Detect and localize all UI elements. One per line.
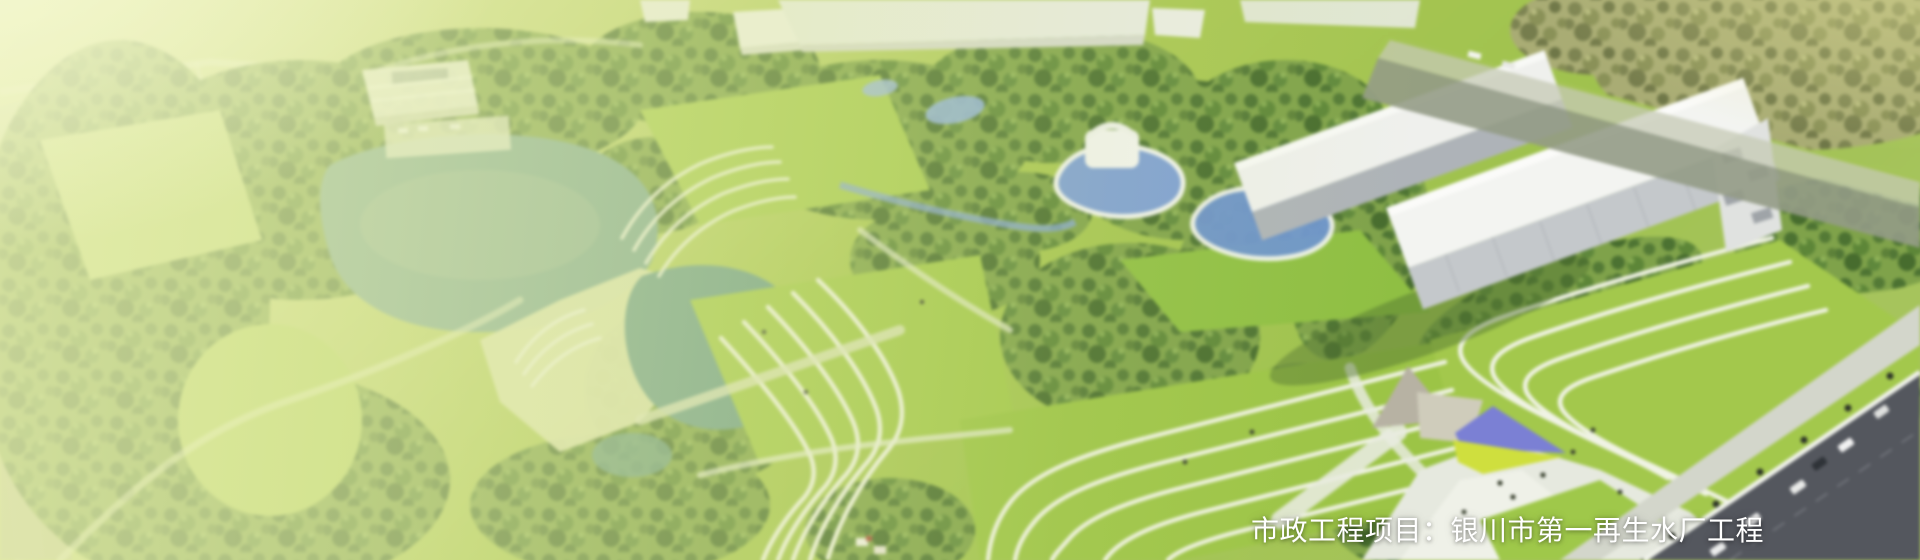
project-caption: 市政工程项目：银川市第一再生水厂工程 [1251, 516, 1764, 546]
arch-pavilion [1085, 122, 1139, 168]
aerial-rendering-svg [0, 0, 1920, 560]
aerial-rendering [0, 0, 1920, 560]
hero-banner: 市政工程项目：银川市第一再生水厂工程 [0, 0, 1920, 560]
